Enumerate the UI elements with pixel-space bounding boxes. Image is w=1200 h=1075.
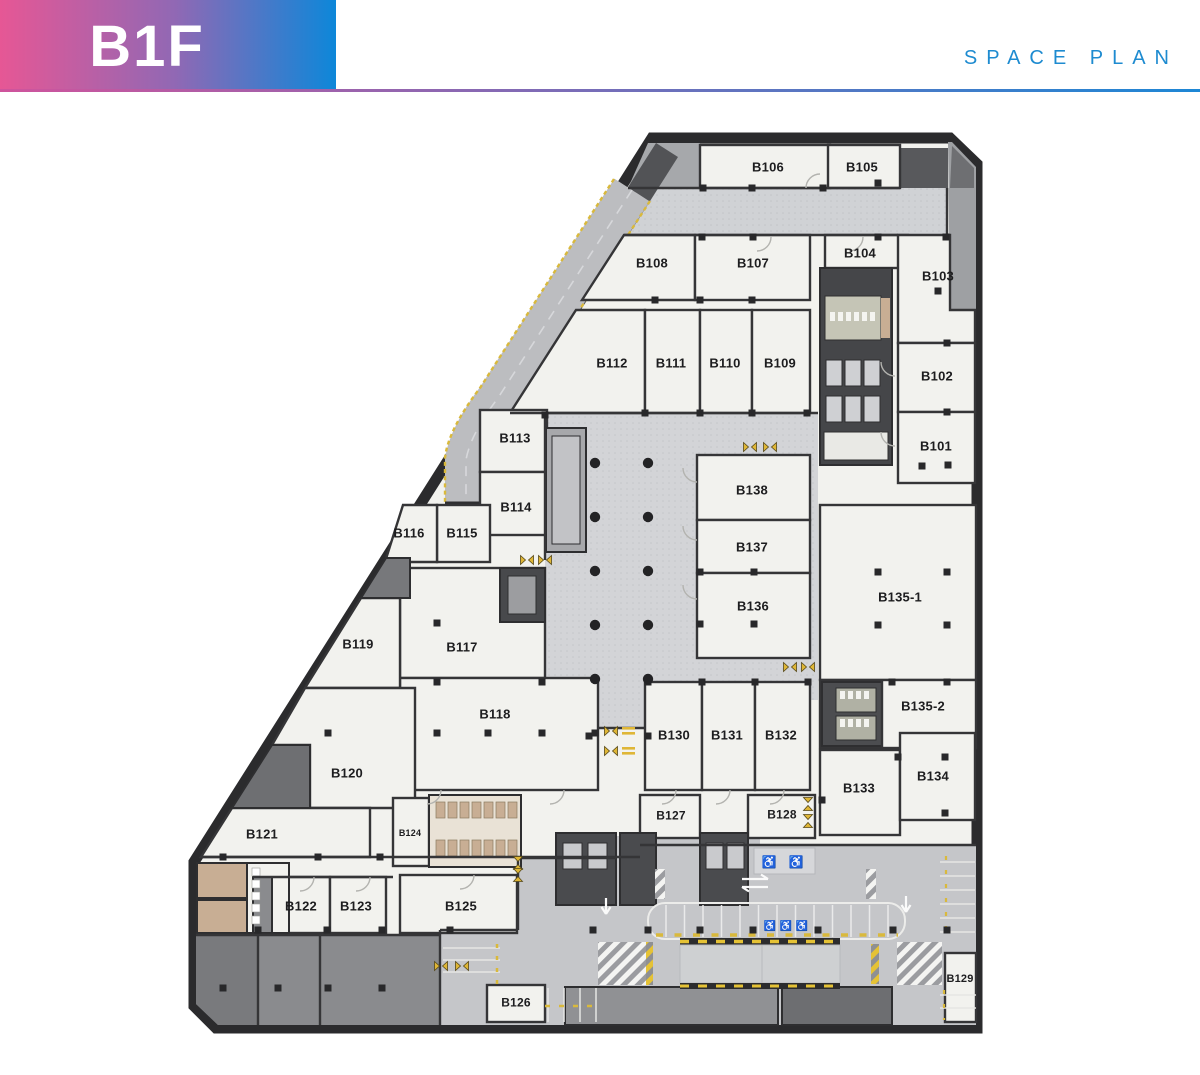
- wheelchair-icon: ♿: [764, 919, 776, 932]
- zone-top-corridor: [624, 188, 947, 235]
- hatch-zone-right: [897, 942, 942, 985]
- room-label-B120: B120: [331, 766, 363, 781]
- room-label-B132: B132: [765, 728, 797, 743]
- wheelchair-icon: ♿: [762, 855, 777, 869]
- room-label-B123: B123: [340, 899, 372, 914]
- storage-room-1: [565, 987, 778, 1025]
- room-label-B127: B127: [656, 808, 686, 822]
- room-label-B131: B131: [711, 728, 743, 743]
- room-label-B115: B115: [446, 526, 477, 541]
- room-label-B136: B136: [737, 599, 769, 614]
- core-lobby: [824, 432, 888, 460]
- room-label-B118: B118: [479, 707, 510, 722]
- room-label-B105: B105: [846, 160, 878, 175]
- hatch-strip-1: [655, 869, 665, 899]
- elevator-car: [826, 396, 842, 422]
- zone-service-topright: [900, 148, 948, 188]
- hatch-zone-left-yellow: [646, 942, 653, 985]
- dock-platform: [680, 945, 840, 983]
- stair-flight: [508, 576, 536, 614]
- room-B121: [201, 808, 370, 857]
- elevator-car: [845, 396, 861, 422]
- zone-bottom-band-dark: [196, 935, 258, 1025]
- room-label-B113: B113: [499, 431, 530, 446]
- hatch-strip-2: [866, 869, 876, 899]
- stair-flight: [552, 436, 580, 544]
- room-B129: [945, 953, 976, 1022]
- wheelchair-icon: ♿: [780, 919, 792, 932]
- room-label-B134: B134: [917, 769, 949, 784]
- room-label-B104: B104: [844, 246, 876, 261]
- room-label-B102: B102: [921, 369, 953, 384]
- room-label-B126: B126: [501, 995, 531, 1009]
- room-label-B137: B137: [736, 540, 768, 555]
- core-finish-strip: [881, 298, 890, 338]
- elevator-car: [864, 396, 880, 422]
- room-label-B128: B128: [767, 807, 797, 821]
- room-label-B135-2: B135-2: [901, 699, 945, 714]
- hatch-zone-left: [598, 942, 646, 985]
- wheelchair-icon: ♿: [789, 855, 804, 869]
- page: B1F SPACE PLAN: [0, 0, 1200, 1075]
- room-label-B119: B119: [342, 637, 373, 652]
- room-label-B116: B116: [393, 526, 424, 541]
- wood-room-2: [197, 900, 247, 933]
- storage-room-2: [782, 987, 892, 1025]
- room-label-B106: B106: [752, 160, 784, 175]
- room-label-B125: B125: [445, 899, 477, 914]
- room-label-B110: B110: [709, 356, 740, 371]
- elevator-car: [845, 360, 861, 386]
- room-label-B135-1: B135-1: [878, 590, 922, 605]
- elevator-car: [826, 360, 842, 386]
- room-label-B117: B117: [446, 640, 477, 655]
- wheelchair-icon: ♿: [796, 919, 808, 932]
- room-label-B121: B121: [246, 827, 278, 842]
- room-label-B114: B114: [500, 500, 532, 515]
- elevator-car: [864, 360, 880, 386]
- room-label-B111: B111: [656, 356, 686, 371]
- room-B136: [697, 573, 810, 658]
- hatch-zone-right-yellow: [871, 944, 879, 984]
- room-label-B133: B133: [843, 781, 875, 796]
- room-label-B103: B103: [922, 269, 954, 284]
- wood-room-1: [197, 863, 247, 898]
- elevator-car: [727, 843, 744, 869]
- room-B118: [400, 678, 598, 790]
- room-label-B130: B130: [658, 728, 690, 743]
- room-label-B129: B129: [946, 973, 973, 985]
- room-label-B122: B122: [285, 899, 317, 914]
- floor-plan: ♿ ♿ ♿ ♿ ♿ B101B102B103B104B105B106B107B1…: [0, 0, 1200, 1075]
- room-label-B124: B124: [399, 828, 421, 838]
- elevator-car: [706, 843, 723, 869]
- room-label-B138: B138: [736, 483, 768, 498]
- room-label-B112: B112: [596, 356, 627, 371]
- room-label-B107: B107: [737, 256, 769, 271]
- room-label-B109: B109: [764, 356, 796, 371]
- room-label-B108: B108: [636, 256, 668, 271]
- room-label-B101: B101: [920, 439, 952, 454]
